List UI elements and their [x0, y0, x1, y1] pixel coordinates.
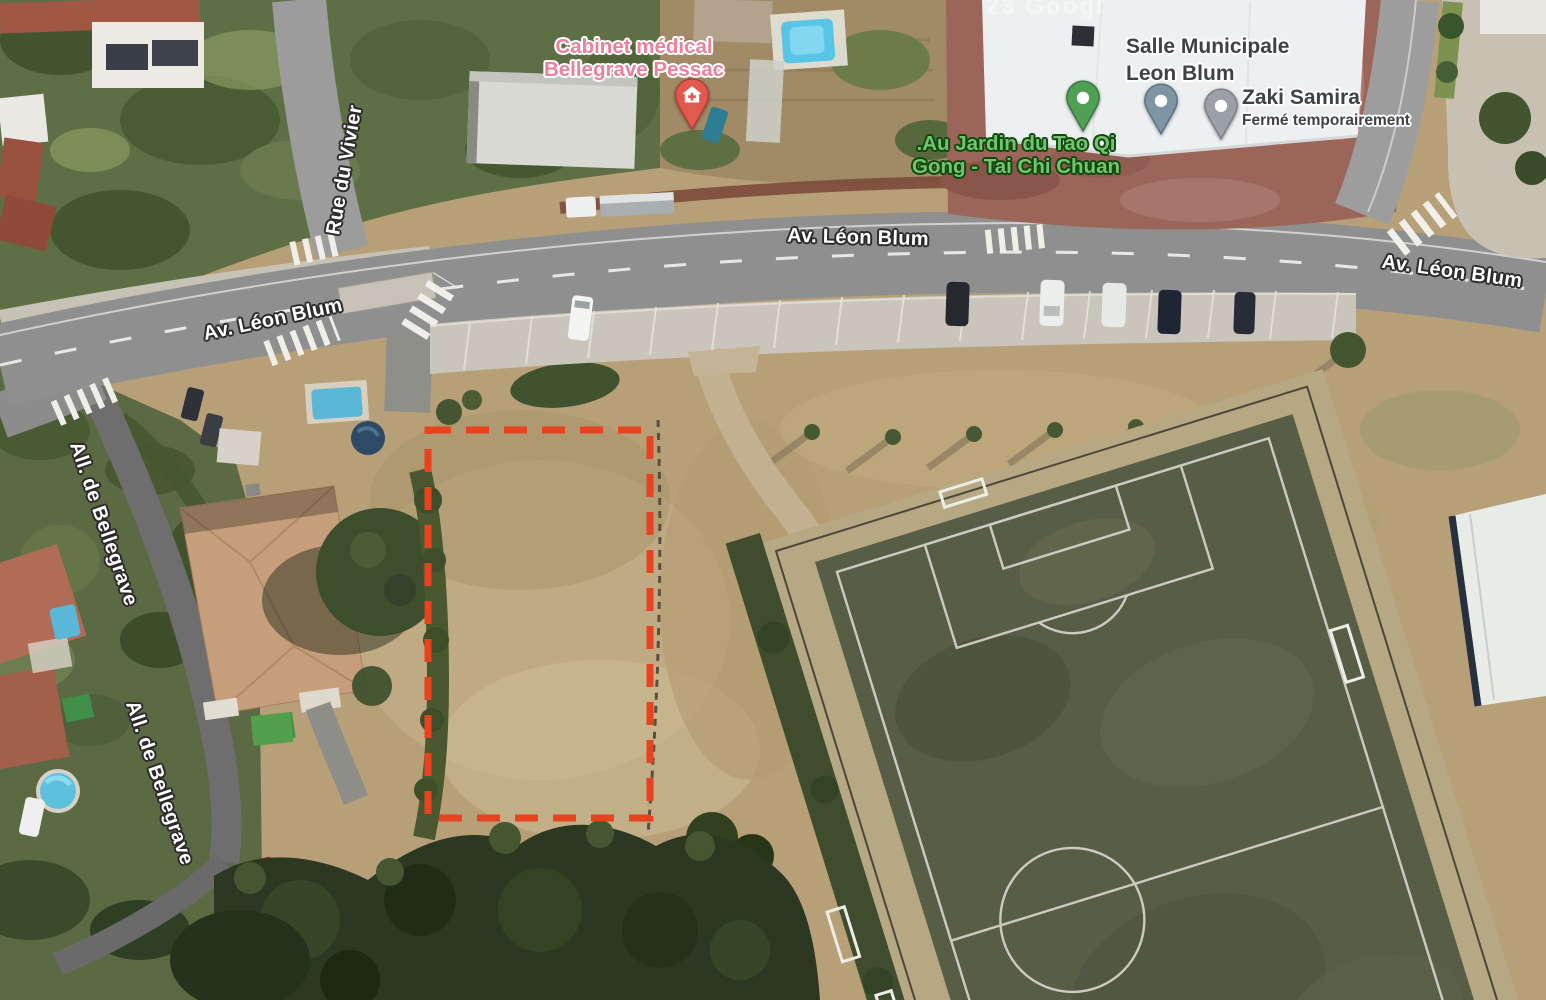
medical-poi-label-line1: Cabinet médical — [544, 35, 724, 58]
site-boundary-annotation — [424, 426, 654, 822]
medical-poi-label[interactable]: Cabinet médical Bellegrave Pessac — [544, 35, 724, 81]
zaki-poi-label[interactable]: Zaki Samira Fermé temporairement — [1242, 86, 1410, 129]
zaki-poi-name: Zaki Samira — [1242, 86, 1410, 109]
site-boundary-rectangle — [428, 430, 650, 818]
zaki-poi-status: Fermé temporairement — [1242, 112, 1410, 129]
satellite-imagery — [0, 0, 1546, 1000]
hospital-pin-icon — [672, 77, 712, 131]
salle-marker[interactable] — [1142, 82, 1180, 136]
salle-poi-label-line1: Salle Municipale — [1126, 33, 1289, 60]
map-canvas[interactable]: 23 Googl Cabinet médical Bellegrave Pess… — [0, 0, 1546, 1000]
green-pin-icon — [1064, 79, 1102, 133]
tao-poi-label-line2: Gong - Tai Chi Chuan — [912, 155, 1120, 178]
tao-poi-label-line1: .Au Jardin du Tao Qi — [912, 132, 1120, 155]
google-watermark: 23 Googl — [986, 0, 1105, 21]
slate-pin-icon — [1142, 82, 1180, 136]
zaki-marker[interactable] — [1202, 87, 1240, 141]
tao-marker[interactable] — [1064, 79, 1102, 133]
salle-poi-label[interactable]: Salle Municipale Leon Blum — [1126, 33, 1289, 87]
medical-marker[interactable] — [672, 77, 712, 131]
tao-poi-label[interactable]: .Au Jardin du Tao Qi Gong - Tai Chi Chua… — [912, 132, 1120, 178]
road-label-av-leon-blum-center: Av. Léon Blum — [787, 225, 929, 252]
gray-pin-icon — [1202, 87, 1240, 141]
